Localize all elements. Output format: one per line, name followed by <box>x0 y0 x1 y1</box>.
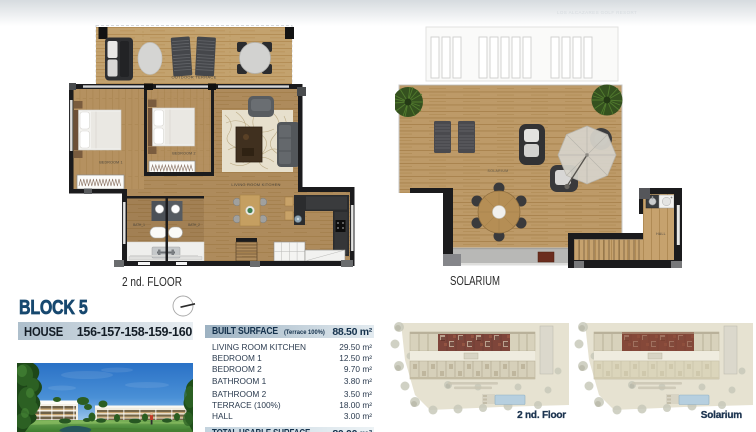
svg-text:OUTDOOR TERRACE: OUTDOOR TERRACE <box>171 75 216 80</box>
svg-text:BATH_2: BATH_2 <box>188 223 200 227</box>
svg-text:HALL: HALL <box>656 232 666 236</box>
svg-text:BATH_1: BATH_1 <box>133 223 145 227</box>
svg-text:BEDROOM 1: BEDROOM 1 <box>99 161 122 165</box>
svg-text:SOLARIUM: SOLARIUM <box>488 169 509 173</box>
svg-text:2 nd. FLOOR: 2 nd. FLOOR <box>122 274 182 289</box>
svg-text:SOLARIUM: SOLARIUM <box>450 273 500 288</box>
svg-text:LIVING ROOM KITCHEN: LIVING ROOM KITCHEN <box>231 182 280 187</box>
svg-text:BEDROOM 2: BEDROOM 2 <box>172 152 195 156</box>
